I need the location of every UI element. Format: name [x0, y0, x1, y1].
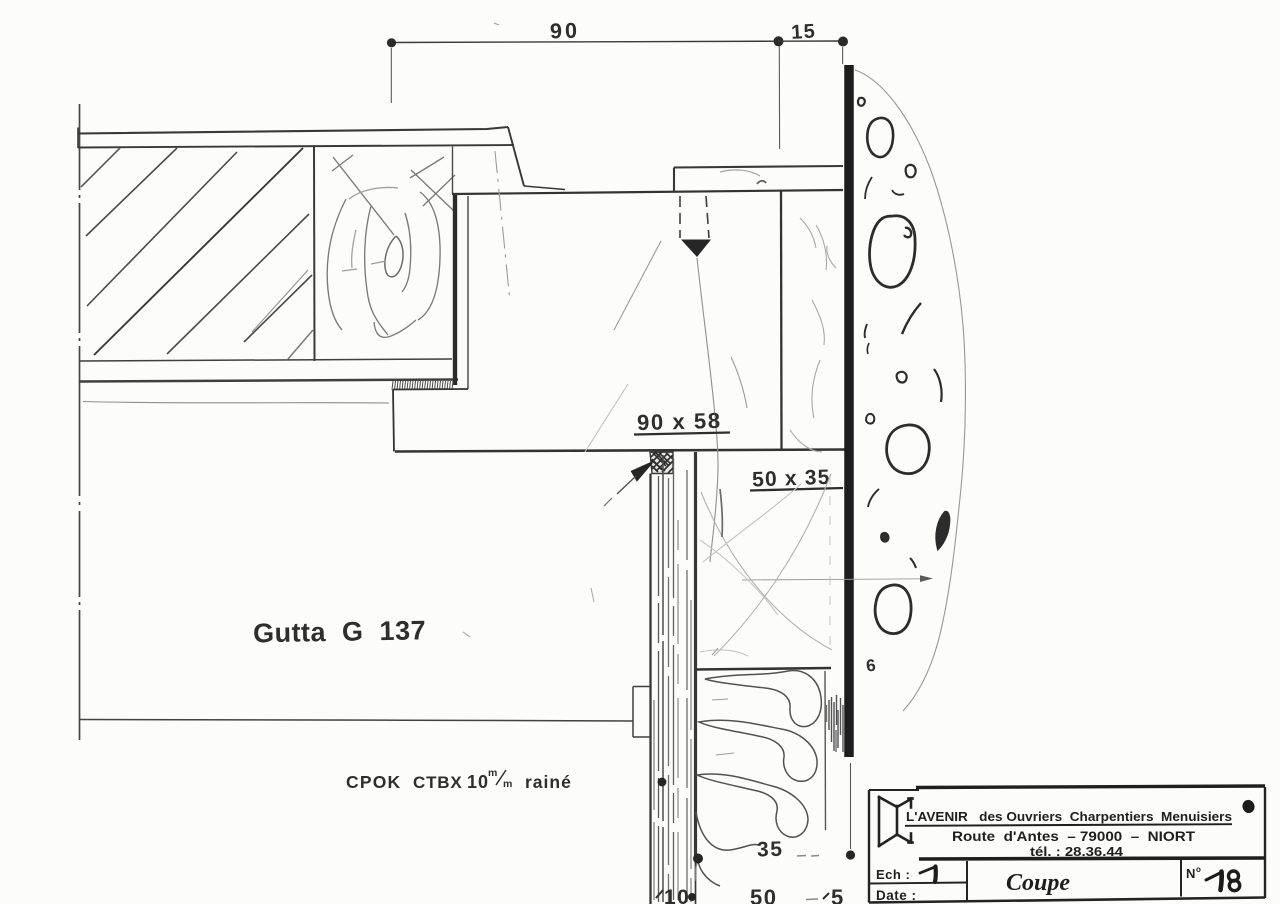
svg-text:15: 15: [791, 21, 817, 44]
svg-text:CTBX: CTBX: [413, 773, 462, 792]
svg-text:90 x 58: 90 x 58: [637, 408, 722, 435]
svg-text:m: m: [503, 778, 512, 790]
svg-text:35: 35: [757, 838, 784, 862]
svg-text:N: N: [1186, 866, 1195, 881]
svg-text:Gutta G 137: Gutta G 137: [253, 615, 427, 648]
svg-text:6: 6: [865, 656, 876, 676]
svg-text:Date :: Date :: [876, 888, 917, 903]
svg-text:10: 10: [467, 772, 489, 792]
svg-text:10: 10: [664, 886, 690, 904]
svg-text:50: 50: [750, 885, 777, 904]
svg-text:L'AVENIR des Ouvriers Charp: L'AVENIR des Ouvriers Charpentiers Menui…: [906, 809, 1232, 824]
svg-text:5: 5: [831, 885, 843, 904]
svg-text:Route d'Antes – 79000 – NI: Route d'Antes – 79000 – NIORT: [952, 829, 1196, 844]
svg-text:Coupe: Coupe: [1006, 870, 1070, 896]
svg-text:90: 90: [550, 19, 581, 44]
svg-text:o: o: [1196, 865, 1201, 874]
svg-text:CPOK: CPOK: [346, 772, 401, 792]
svg-text:tél. : 28.36.44: tél. : 28.36.44: [1030, 844, 1124, 859]
svg-text:rainé: rainé: [525, 772, 572, 792]
svg-text:Ech :: Ech :: [876, 867, 910, 882]
svg-text:m: m: [488, 767, 497, 779]
